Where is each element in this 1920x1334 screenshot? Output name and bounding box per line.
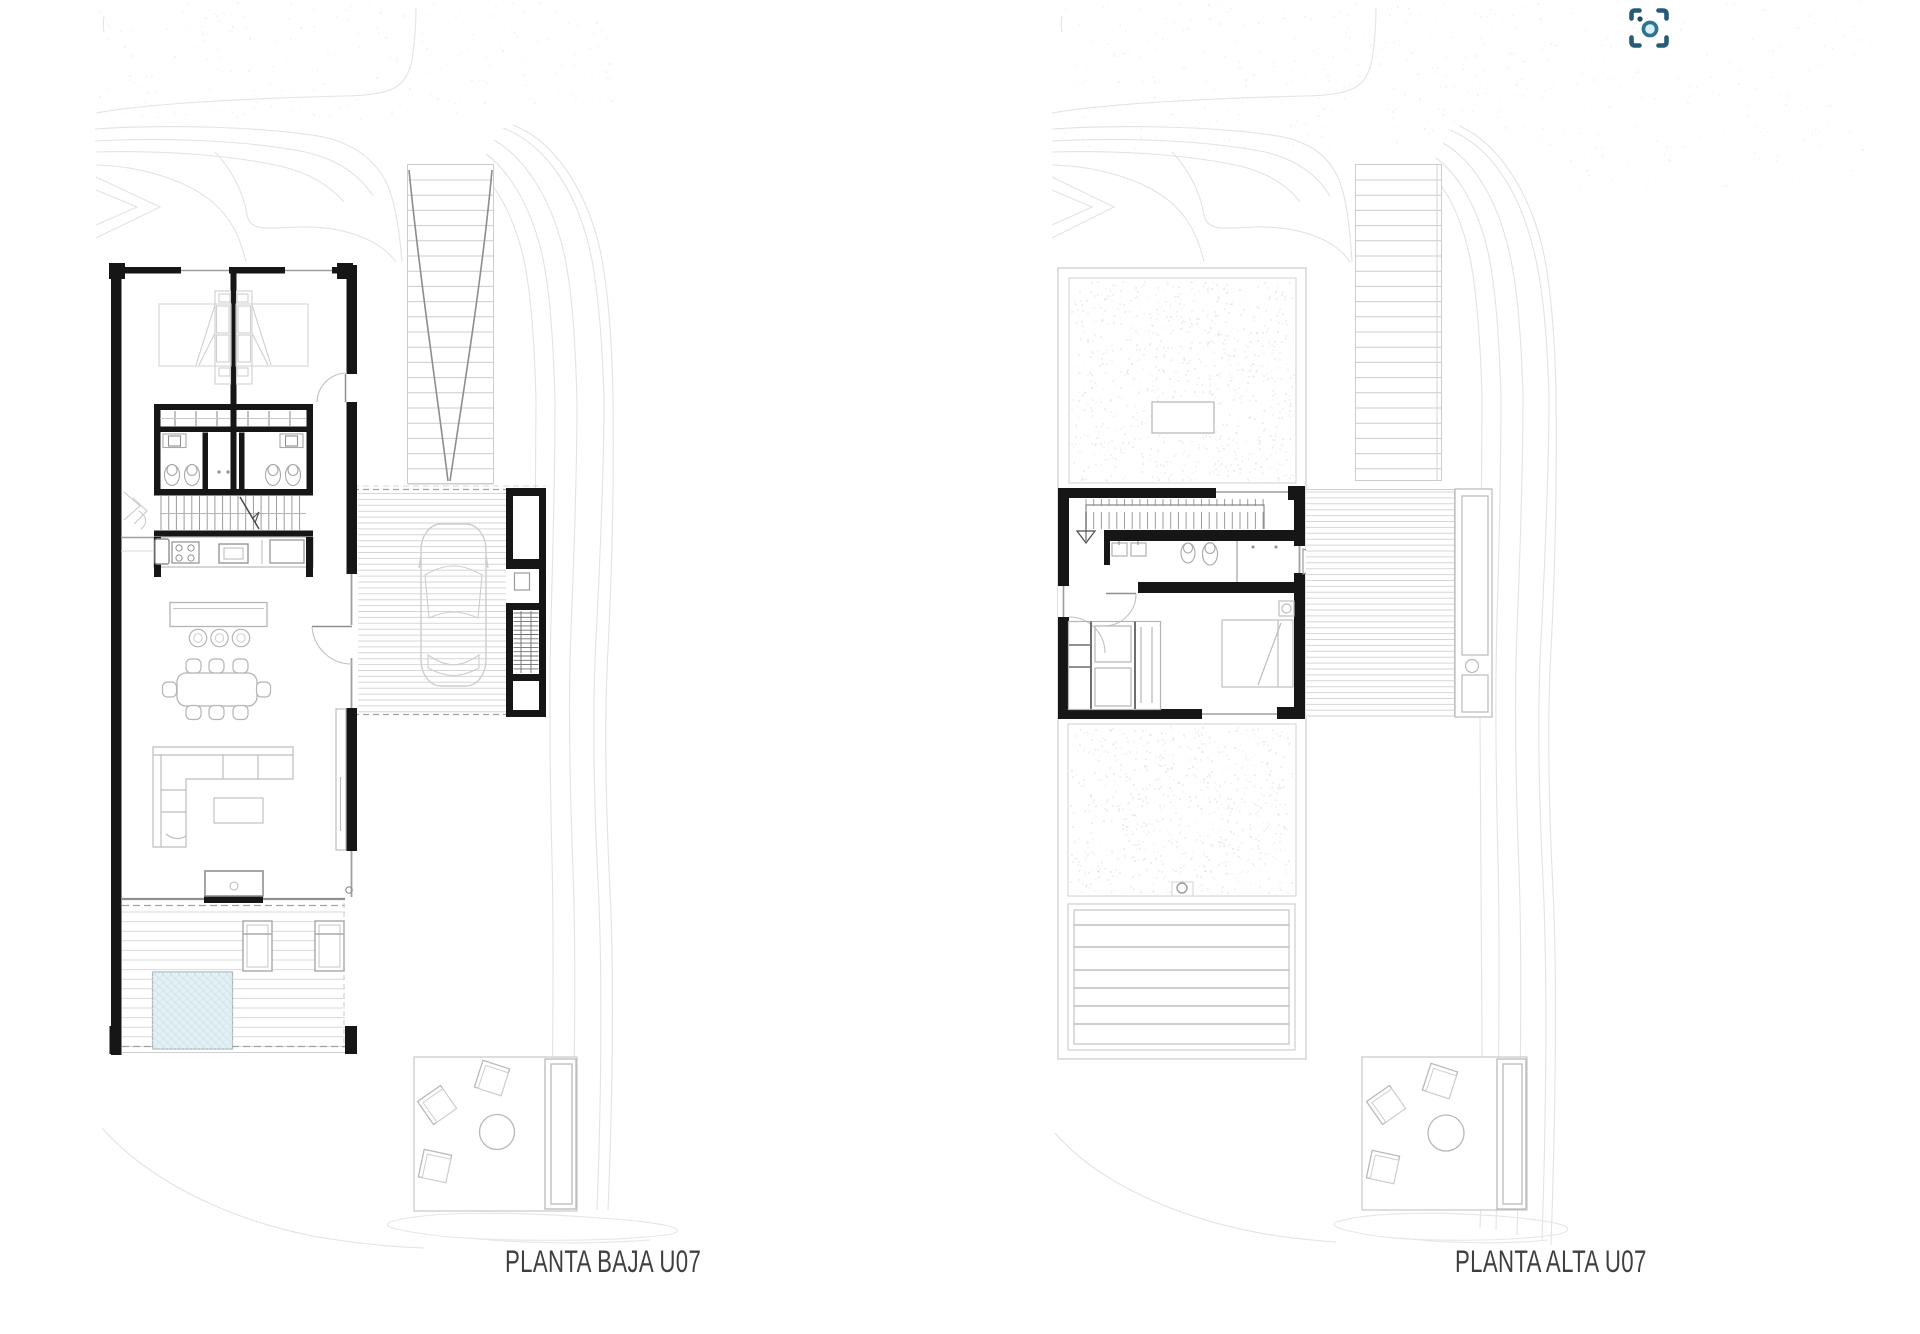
svg-text:PLANTA BAJA U07: PLANTA BAJA U07 xyxy=(505,1243,701,1279)
svg-text:PLANTA ALTA U07: PLANTA ALTA U07 xyxy=(1455,1243,1647,1279)
